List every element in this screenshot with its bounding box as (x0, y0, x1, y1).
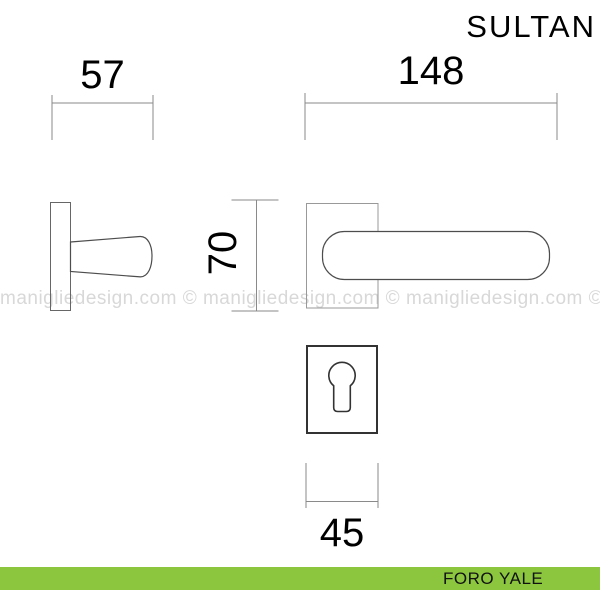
rosette-side-profile (51, 203, 71, 311)
lever-side-profile (71, 236, 153, 276)
dim-front-width-lines (305, 93, 557, 140)
handle-side-view (51, 203, 153, 311)
product-drawing-page: SULTAN manigliedesign.com © manigliedesi… (0, 0, 600, 600)
euro-keyhole-icon (329, 362, 355, 411)
dim-escutcheon-width-lines (306, 463, 378, 508)
handle-front-view (307, 204, 550, 309)
escutcheon-front-view (307, 346, 377, 433)
dim-side-width-lines (52, 95, 153, 140)
dim-label-escutcheon-width: 45 (306, 512, 378, 554)
dim-label-front-width: 148 (305, 50, 557, 92)
dim-label-side-width: 57 (52, 54, 153, 96)
footer-label: FORO YALE (443, 567, 543, 590)
dim-label-rosette-height: 70 (203, 223, 243, 283)
escutcheon-plate (307, 346, 377, 433)
footer-bar: FORO YALE (0, 567, 600, 590)
lever-front-profile (323, 232, 550, 280)
